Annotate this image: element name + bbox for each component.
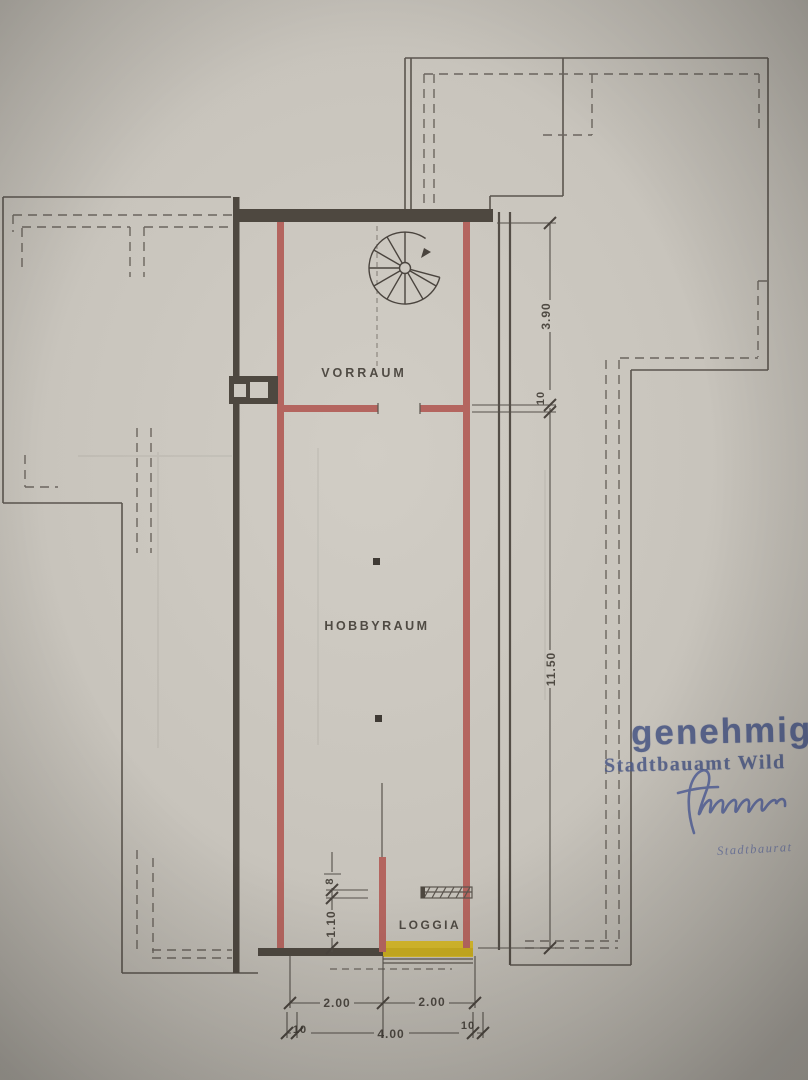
- roof-dashed-lines: [13, 74, 770, 958]
- room-label-loggia: LOGGIA: [399, 918, 461, 932]
- dim-bottom-200-right: 2.00: [418, 995, 445, 1009]
- highlighter-mark: [383, 941, 473, 957]
- dim-bottom-10-left: 10: [293, 1024, 307, 1036]
- room-label-hobbyraum: HOBBYRAUM: [324, 619, 429, 633]
- dim-left-8: 8: [324, 877, 336, 884]
- stamp-approval-word: genehmig: [631, 712, 808, 751]
- signature-mark: [678, 770, 785, 833]
- dim-right-390: 3.90: [539, 302, 553, 329]
- structural-posts: [373, 558, 382, 722]
- dim-left-110: 1.10: [324, 910, 338, 937]
- dim-bottom-400: 4.00: [377, 1027, 404, 1041]
- dim-right-10: 10: [535, 391, 547, 405]
- dim-right-1150: 11.50: [544, 652, 558, 686]
- dim-bottom-200-left: 2.00: [323, 996, 350, 1010]
- stamp-authority: Stadtbauamt Wild: [604, 751, 786, 777]
- right-wing-outline: [405, 58, 768, 965]
- ghost-lines: [78, 448, 545, 748]
- section-walls-dark: [233, 197, 493, 973]
- balcony-edge-lines: [383, 959, 473, 963]
- chimney: [229, 376, 278, 404]
- room-label-vorraum: VORRAUM: [321, 366, 407, 380]
- right-wall-lines: [499, 212, 510, 965]
- left-wing-outline: [3, 197, 258, 973]
- red-walls: [277, 222, 470, 952]
- spiral-stair: [369, 232, 440, 304]
- dim-bottom-10-right: 10: [461, 1020, 475, 1032]
- scanned-floorplan-photo: VORRAUM HOBBYRAUM LOGGIA 3.90 10 11.50 8…: [0, 0, 808, 1080]
